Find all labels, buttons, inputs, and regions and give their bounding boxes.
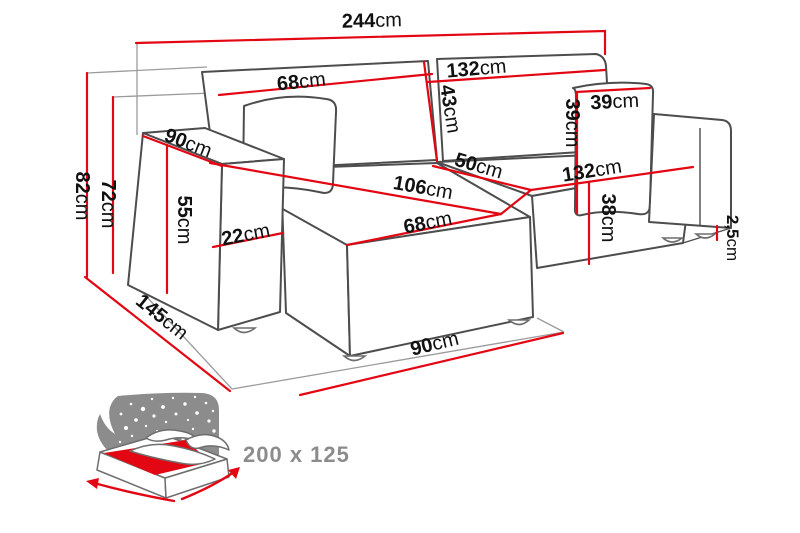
label-armrest-height: 55cm <box>173 196 195 245</box>
label-total-width: 244cm <box>342 9 403 33</box>
dim-line-total-width <box>136 31 605 54</box>
label-pillow-height: 39cm <box>561 99 583 148</box>
ref-line-backrest-height-top <box>113 93 212 97</box>
leg-armrest <box>234 328 255 333</box>
label-total-height: 82cm <box>71 172 93 221</box>
label-leg-height: 2,5cm <box>723 215 742 261</box>
ref-line-total-height-top <box>87 67 207 73</box>
label-pillow-width: 39cm <box>590 90 640 115</box>
bed-width-arrow-head <box>86 478 99 489</box>
label-seat-front-height: 38cm <box>597 194 619 243</box>
leg-chaise <box>344 356 365 361</box>
leg-middle <box>509 320 529 325</box>
bed-length-arrow-head <box>228 467 240 479</box>
sleeping-function-icon: 200 x 125 <box>86 393 350 501</box>
diagram-canvas: 244cm 82cm 72cm 90cm 55cm 22cm 68cm 132c… <box>0 0 800 533</box>
label-backrest-height: 72cm <box>97 180 119 229</box>
ref-line-floor-corner <box>537 318 564 332</box>
sofa-dimension-diagram: 244cm 82cm 72cm 90cm 55cm 22cm 68cm 132c… <box>0 0 800 533</box>
sleeping-area-label: 200 x 125 <box>243 442 350 467</box>
